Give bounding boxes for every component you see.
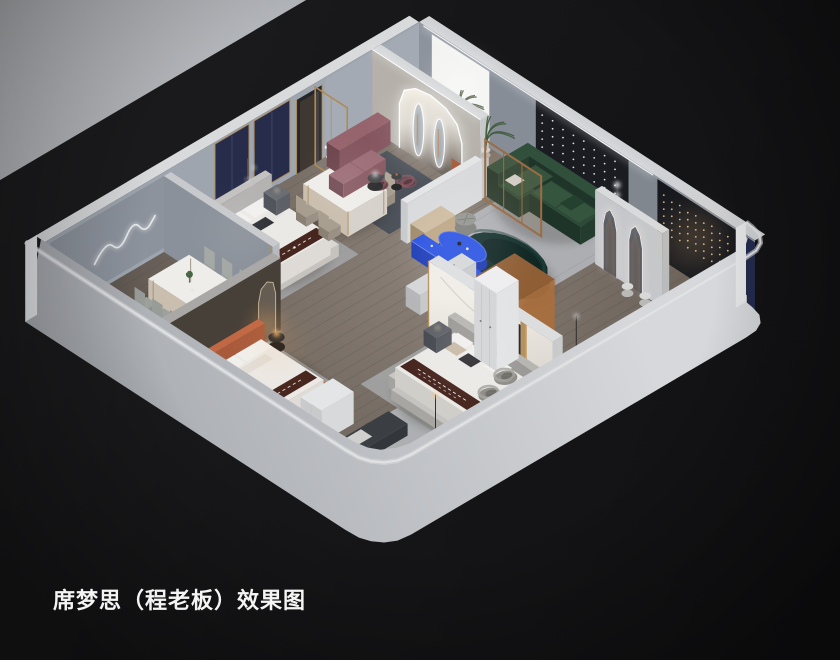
- showroom-3d-rendering: [0, 0, 840, 660]
- caption: 席梦思（程老板）效果图: [53, 583, 306, 615]
- rendering-canvas: 席梦思（程老板）效果图: [0, 0, 840, 660]
